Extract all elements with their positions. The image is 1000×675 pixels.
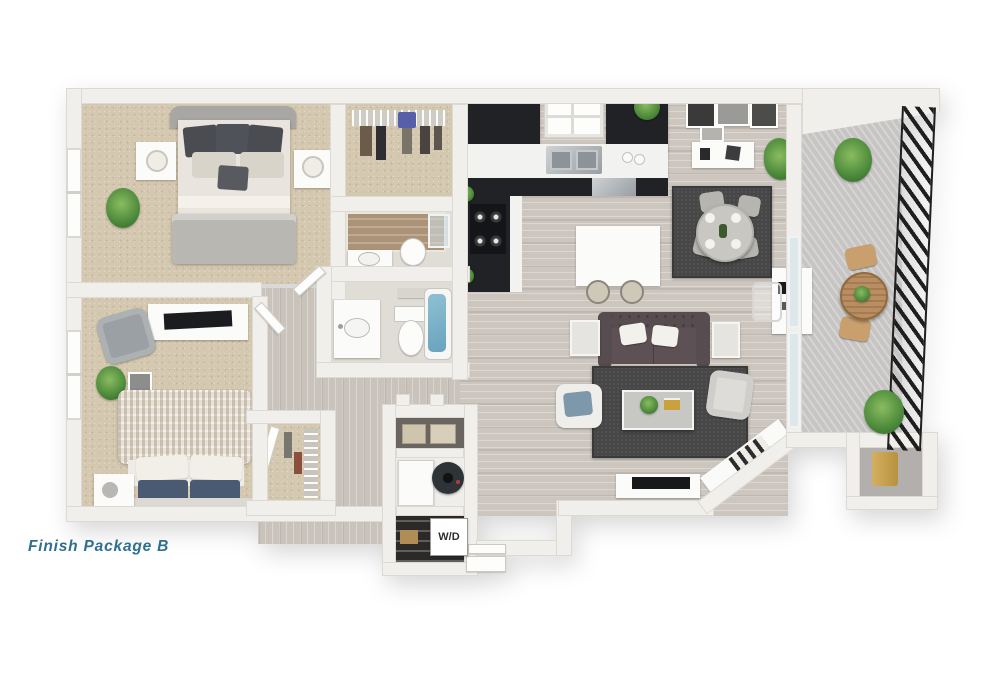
bed2-knit-blanket (118, 390, 252, 464)
finish-package-caption: Finish Package B (28, 538, 169, 556)
balcony-plant-top (834, 138, 872, 182)
closet2-wire-shelf (304, 428, 318, 498)
wall-laundry-bottom (382, 562, 478, 576)
master-shower-stall (428, 214, 450, 248)
bed2-pillow-navy-2 (190, 480, 240, 500)
kitchen-window (544, 98, 604, 138)
dining-table (696, 204, 754, 262)
kitchen-canister-1 (622, 152, 633, 163)
wall-bath2-bottom (316, 362, 470, 378)
sideboard-decor-1 (700, 148, 710, 160)
kitchen-base-cabinets (466, 178, 668, 196)
bedroom2-window-mullion (66, 373, 82, 376)
wall-bottom-left (66, 506, 390, 522)
living-tv (632, 477, 690, 489)
coffee-table-plant (640, 396, 658, 414)
side-table-right (712, 322, 740, 358)
wall-bed1-bed2 (66, 282, 262, 298)
wall-laundry-left (382, 404, 396, 576)
sofa-arm-right (696, 312, 710, 368)
bedroom1-plant (106, 188, 140, 228)
closet1-clothes-blue-shirt (398, 112, 416, 128)
pantry-box (400, 530, 418, 544)
kitchen-upper-cabinets-left (466, 104, 540, 144)
master-toilet (400, 238, 426, 266)
balcony-plant-bottom (864, 390, 904, 434)
wall-art-4 (700, 126, 724, 142)
sofa-pillow-white-2 (651, 324, 679, 347)
bath2-sink (344, 318, 370, 338)
plate-3 (705, 239, 715, 249)
entry-door (468, 544, 506, 554)
closet1-clothes-4 (420, 126, 430, 154)
closet2-clothes-1 (284, 432, 292, 458)
wall-closet1-bath (330, 196, 466, 212)
bed1-pillow-dark-2 (216, 124, 250, 154)
table-bottle (719, 224, 727, 238)
wall-greatroom-bottom (558, 500, 714, 516)
floor-plan-render: W/D (0, 0, 1000, 675)
wall-laundry-divider-2 (396, 506, 464, 516)
wall-baths-divider (316, 266, 470, 282)
laundry-basket-1 (402, 424, 426, 444)
island-stool-2 (620, 280, 644, 304)
armchair-gray (705, 369, 755, 421)
kitchen-canister-2 (634, 154, 645, 165)
bed2-pillow-white-1 (135, 454, 189, 482)
washer-drum (432, 462, 464, 494)
water-heater (872, 452, 898, 486)
wall-art-3 (750, 102, 778, 128)
armchair-blue-pillow (563, 391, 593, 418)
balcony-slider-glass-1 (788, 236, 800, 328)
lamp-right (302, 156, 324, 178)
coffee-table-books (664, 400, 680, 410)
plate-2 (731, 213, 741, 223)
bedroom1-window-mullion (66, 191, 82, 194)
washer-dryer-label: W/D (430, 518, 468, 556)
wall-art-1 (686, 102, 716, 128)
wall-storage-bottom (846, 496, 938, 510)
closet1-clothes-1 (360, 126, 372, 156)
closet1-clothes-3 (402, 128, 412, 154)
wall-laundry-hook-2 (430, 394, 444, 406)
desk-chair (752, 282, 782, 322)
wall-closet2-bottom (246, 500, 336, 516)
plate-4 (731, 239, 741, 249)
kitchen-window-mullion-h (546, 115, 600, 118)
closet2-clothes-2 (294, 452, 302, 474)
bed1-duvet (172, 214, 296, 264)
sink-basin-left (550, 150, 572, 170)
sideboard-decor-2 (725, 145, 741, 161)
bath2-toilet-bowl (398, 320, 424, 356)
lamp-left (146, 150, 168, 172)
side-table-left (570, 320, 600, 356)
balcony-slider-glass-2 (788, 332, 800, 428)
washer-indicator-light (456, 480, 460, 484)
dryer-top (398, 460, 434, 506)
bed2-pillow-navy-1 (138, 480, 188, 500)
wall-top (66, 88, 908, 104)
kitchen-island (576, 226, 660, 286)
bed2-pillow-white-2 (189, 455, 242, 482)
bedroom2-decor-moon (102, 482, 118, 498)
wall-laundry-hook-1 (396, 394, 410, 406)
sink-basin-right (576, 150, 598, 170)
wall-bed2-hall (252, 296, 268, 512)
coffee-table (622, 390, 694, 430)
master-bath-sink (358, 252, 380, 266)
island-stool-1 (586, 280, 610, 304)
bed1-sheet-fold (178, 196, 290, 208)
wall-kitchen-bath (452, 104, 468, 380)
laundry-basket-2 (430, 424, 456, 444)
closet1-clothes-5 (434, 126, 442, 150)
stove-cooktop (470, 204, 506, 254)
floorplan-canvas: W/D Finish Package B (0, 0, 1000, 675)
bistro-table-plant (854, 286, 870, 302)
wall-laundry-divider-1 (396, 448, 464, 458)
closet1-clothes-2 (376, 126, 386, 160)
bathtub-water (428, 294, 446, 352)
bath2-faucet (338, 324, 343, 329)
kitchen-left-run-counter-edge (510, 196, 522, 292)
entry-step (466, 556, 506, 572)
bed1-pillow-accent (217, 165, 249, 191)
sofa-arm-left (598, 312, 612, 368)
plate-1 (705, 213, 715, 223)
dishwasher (592, 178, 636, 196)
sofa-pillow-white-1 (619, 322, 648, 346)
